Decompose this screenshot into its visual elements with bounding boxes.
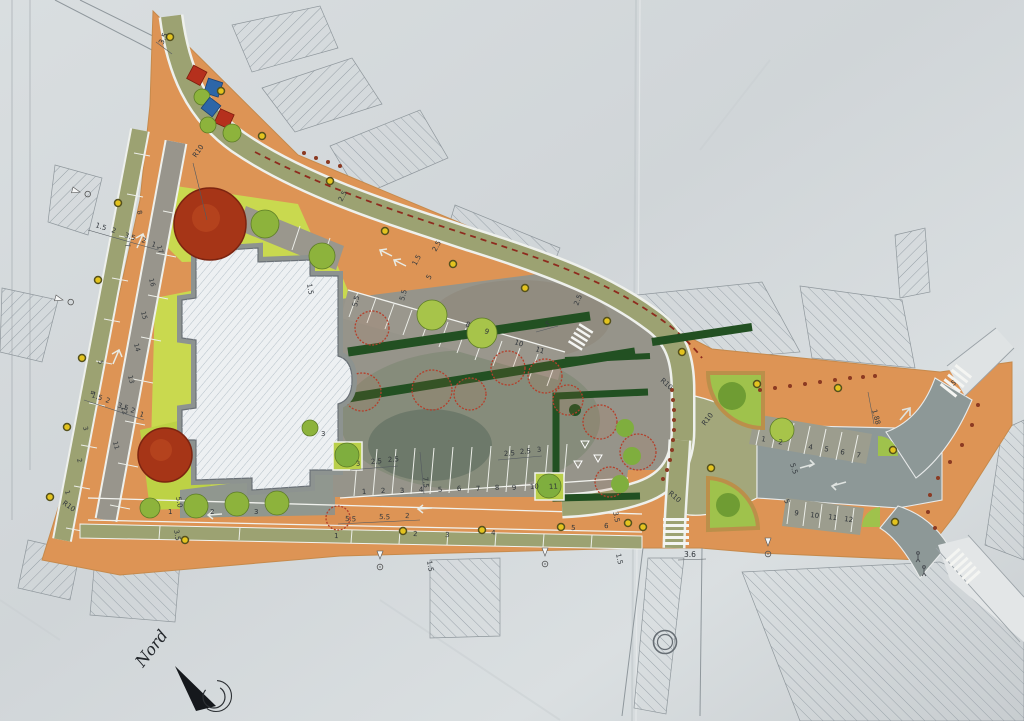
dim-label: 5.5 [379, 513, 390, 521]
new-building [182, 248, 352, 490]
dim-label: 2 [405, 512, 410, 520]
tree-number: 3 [254, 508, 258, 516]
dim-label: 2.5 [504, 449, 516, 458]
stall-number: 8 [495, 484, 500, 492]
stall-number: 11 [549, 483, 558, 491]
dim-label: 3 [321, 430, 325, 438]
stall-number: 11 [828, 513, 838, 522]
stall-number: 3 [400, 487, 405, 495]
stall-number: 9 [512, 484, 517, 492]
tree-number: 1 [168, 508, 172, 516]
dim-label: 5.5 [345, 515, 356, 523]
stall-number: 12 [844, 515, 854, 524]
dim-label: 3 [537, 446, 542, 454]
verge-segment-number: 2 [413, 530, 418, 538]
dim-label: 2.5 [371, 457, 383, 466]
verge-segment-number: 6 [604, 522, 609, 530]
stall-number: 2 [381, 487, 386, 495]
stall-number: 5 [438, 486, 443, 494]
stall-number: 7 [476, 485, 481, 493]
verge-segment-number: 4 [491, 529, 496, 537]
stall-number: 1 [362, 488, 367, 496]
dim-label: 2.5 [520, 447, 532, 456]
dim-label: 2.5 [388, 455, 400, 464]
verge-segment-number: 1 [334, 532, 339, 540]
dim-label: 3.6 [684, 550, 696, 559]
dim-label: 3 [356, 460, 361, 468]
tree-number: 2 [210, 508, 214, 516]
verge-segment-number: 3 [445, 531, 450, 539]
site-plan-drawing: 3.5 2.5 2.5 5 1.5 5.5 2.5 1.5 2 3.5 2 1 … [0, 0, 1024, 721]
photographed-plan-sheet: 3.5 2.5 2.5 5 1.5 5.5 2.5 1.5 2 3.5 2 1 … [0, 0, 1024, 721]
stall-number: 10 [530, 483, 539, 491]
stall-number: 10 [810, 511, 820, 520]
verge-segment-number: 5 [571, 524, 576, 532]
